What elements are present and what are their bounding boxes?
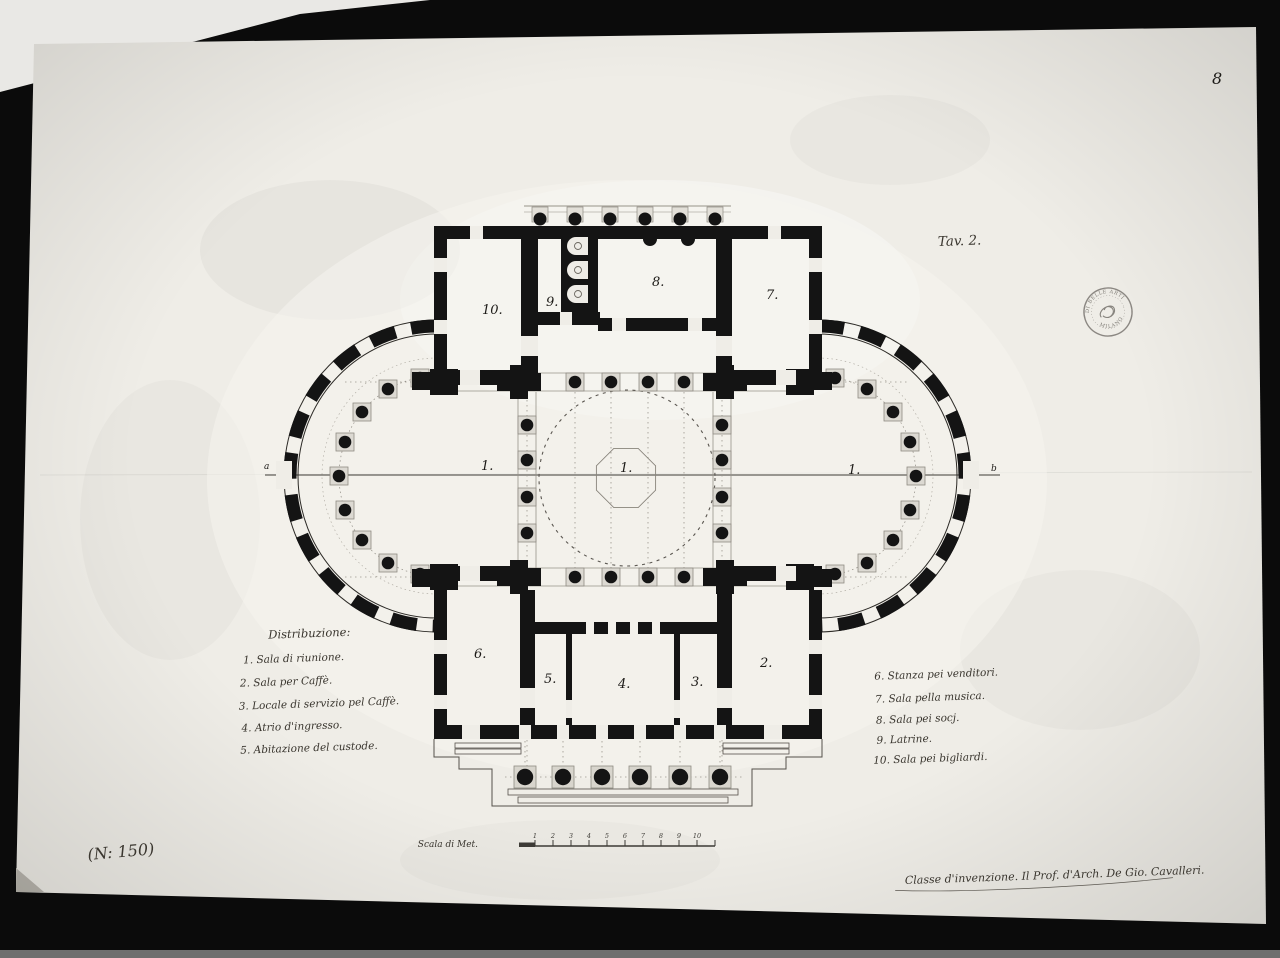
west-door-gap bbox=[276, 461, 292, 489]
room-label-7: 7. bbox=[766, 288, 778, 303]
pier bbox=[616, 622, 630, 634]
column bbox=[713, 524, 731, 542]
gap bbox=[460, 566, 480, 581]
pier bbox=[660, 622, 674, 634]
gap bbox=[768, 226, 781, 239]
pier bbox=[594, 622, 608, 634]
column bbox=[336, 501, 354, 519]
column bbox=[602, 568, 620, 586]
room-label-2: 2. bbox=[759, 656, 772, 671]
column bbox=[552, 766, 574, 788]
scanbed-bottom-edge bbox=[0, 950, 1280, 958]
tick-label: 2 bbox=[550, 832, 555, 840]
gap bbox=[460, 370, 480, 385]
gap bbox=[688, 318, 702, 331]
gap bbox=[520, 688, 535, 708]
gap bbox=[809, 640, 822, 654]
column bbox=[858, 380, 876, 398]
room-label-6: 6. bbox=[474, 647, 486, 662]
wall bbox=[434, 590, 447, 738]
wall bbox=[434, 725, 822, 739]
wall bbox=[434, 226, 447, 378]
room-label-5: 5. bbox=[544, 672, 556, 687]
gap bbox=[674, 700, 680, 718]
pier bbox=[638, 622, 652, 634]
axis-label-b: b bbox=[991, 464, 997, 474]
tick-label: 6 bbox=[623, 832, 627, 840]
hall-label-left: 1. bbox=[481, 459, 493, 474]
photograph: 10. 9. 8. 7. 1. 1. 1. 6. 5. 4. 3. 2. a b… bbox=[0, 0, 1280, 958]
column bbox=[901, 501, 919, 519]
gap bbox=[470, 226, 483, 239]
column bbox=[353, 531, 371, 549]
gap bbox=[434, 258, 447, 272]
gap bbox=[714, 725, 726, 739]
niche bbox=[576, 285, 588, 303]
gap bbox=[521, 336, 538, 356]
column bbox=[379, 554, 397, 572]
column bbox=[566, 568, 584, 586]
column bbox=[713, 488, 731, 506]
gap bbox=[462, 725, 480, 739]
column bbox=[675, 568, 693, 586]
gap bbox=[674, 725, 686, 739]
tick-label: 10 bbox=[693, 832, 701, 840]
east-door-gap bbox=[963, 461, 979, 489]
wall bbox=[566, 622, 572, 738]
column bbox=[602, 373, 620, 391]
wall bbox=[809, 226, 822, 378]
column bbox=[858, 554, 876, 572]
room-label-9: 9. bbox=[546, 295, 558, 310]
legend-title: Distribuzione: bbox=[267, 625, 351, 642]
column bbox=[901, 433, 919, 451]
niche bbox=[576, 237, 588, 255]
room-label-4: 4. bbox=[617, 677, 630, 692]
column bbox=[713, 451, 731, 469]
hall-label-center: 1. bbox=[620, 461, 632, 476]
plate-label: Tav. 2. bbox=[938, 232, 982, 250]
wall bbox=[676, 622, 718, 634]
pier bbox=[572, 622, 586, 634]
gap bbox=[776, 370, 796, 385]
tick-label: 9 bbox=[677, 832, 681, 840]
tick-label: 8 bbox=[659, 832, 663, 840]
gap bbox=[434, 640, 447, 654]
column bbox=[709, 766, 731, 788]
room-label-8: 8. bbox=[652, 275, 664, 290]
tick-label: 3 bbox=[569, 832, 573, 840]
column bbox=[884, 531, 902, 549]
column bbox=[713, 416, 731, 434]
room-label-10: 10. bbox=[482, 303, 503, 318]
gap bbox=[809, 695, 822, 709]
pier-stub bbox=[412, 569, 432, 587]
wall bbox=[674, 622, 680, 738]
gap bbox=[434, 320, 447, 334]
room-label-3: 3. bbox=[691, 675, 703, 690]
column bbox=[907, 467, 925, 485]
wall bbox=[520, 590, 535, 738]
gap bbox=[519, 725, 531, 739]
column bbox=[379, 380, 397, 398]
gap bbox=[557, 725, 569, 739]
gap bbox=[434, 695, 447, 709]
column bbox=[330, 467, 348, 485]
column bbox=[518, 451, 536, 469]
gap bbox=[764, 725, 782, 739]
column bbox=[669, 766, 691, 788]
gap bbox=[634, 725, 646, 739]
column bbox=[518, 488, 536, 506]
legend-item-9: 9. Latrine. bbox=[876, 733, 932, 747]
hall-label-right: 1. bbox=[848, 463, 860, 478]
column bbox=[884, 403, 902, 421]
column bbox=[591, 766, 613, 788]
gap bbox=[560, 312, 572, 325]
axis-label-a: a bbox=[264, 462, 269, 472]
gap bbox=[776, 566, 796, 581]
column bbox=[629, 766, 651, 788]
tick-label: 4 bbox=[586, 832, 591, 840]
scale-label: Scala di Met. bbox=[418, 840, 478, 850]
pier-stub bbox=[412, 372, 432, 390]
gap bbox=[809, 320, 822, 334]
gap bbox=[596, 725, 608, 739]
gap bbox=[717, 688, 732, 708]
scale-hatch bbox=[519, 843, 535, 848]
page-number: 8 bbox=[1212, 69, 1222, 88]
gap bbox=[716, 336, 732, 356]
column bbox=[566, 373, 584, 391]
wall bbox=[530, 622, 570, 634]
gap bbox=[809, 258, 822, 272]
column bbox=[518, 416, 536, 434]
column bbox=[639, 373, 657, 391]
wall bbox=[434, 226, 822, 239]
gap bbox=[566, 700, 572, 718]
tick-label: 1 bbox=[533, 832, 537, 840]
wall bbox=[809, 590, 822, 738]
column bbox=[514, 766, 536, 788]
column bbox=[353, 403, 371, 421]
column bbox=[675, 373, 693, 391]
scan-canvas: 10. 9. 8. 7. 1. 1. 1. 6. 5. 4. 3. 2. a b… bbox=[0, 0, 1280, 958]
niche bbox=[576, 261, 588, 279]
wall bbox=[717, 590, 732, 738]
column bbox=[518, 524, 536, 542]
tick-label: 5 bbox=[605, 832, 609, 840]
gap bbox=[612, 318, 626, 331]
column bbox=[336, 433, 354, 451]
column bbox=[639, 568, 657, 586]
